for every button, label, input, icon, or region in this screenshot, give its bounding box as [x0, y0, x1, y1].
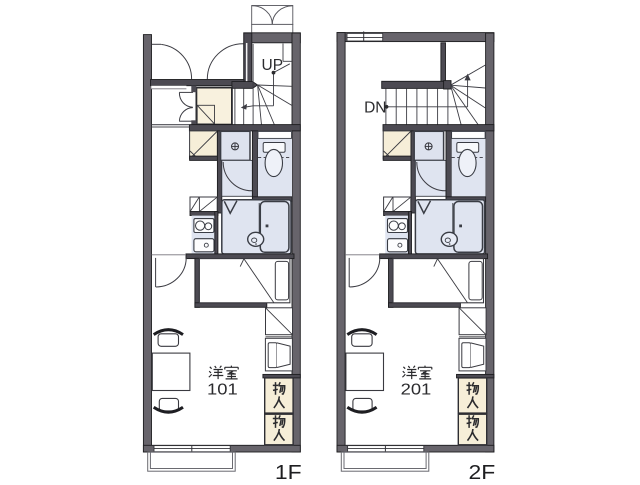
svg-text:2F: 2F [469, 460, 496, 484]
svg-text:DN: DN [364, 99, 386, 116]
svg-text:1F: 1F [275, 460, 302, 484]
svg-text:101: 101 [207, 380, 238, 399]
svg-text:201: 201 [401, 380, 432, 399]
svg-text:UP: UP [262, 57, 284, 74]
